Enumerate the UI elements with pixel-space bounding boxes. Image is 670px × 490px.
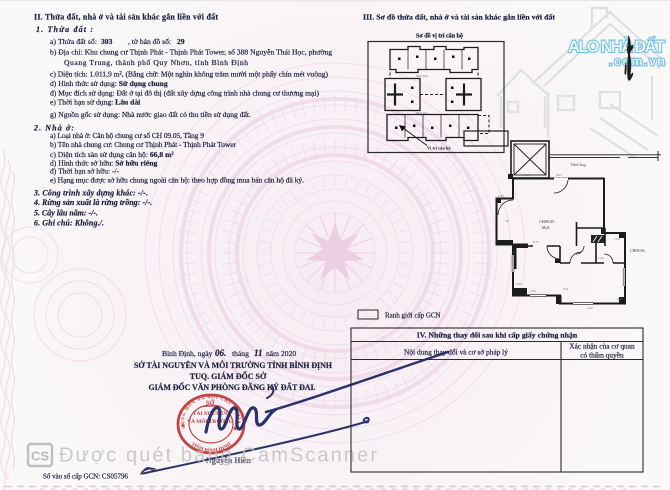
svg-text:III. Sơ đồ thửa đất, nhà ở và: III. Sơ đồ thửa đất, nhà ở và tài sản kh… <box>363 13 555 22</box>
svg-text:năm 2020: năm 2020 <box>266 349 296 358</box>
svg-text:1.45: 1.45 <box>498 194 504 198</box>
svg-text:Sơ đồ vị trí căn hộ: Sơ đồ vị trí căn hộ <box>416 33 463 40</box>
svg-text:0.08: 0.08 <box>617 297 623 301</box>
svg-text:Hành lang: Hành lang <box>416 75 428 78</box>
svg-text:Số vào sổ cấp GCN: CS05796: Số vào sổ cấp GCN: CS05796 <box>43 473 128 481</box>
svg-text:có thẩm quyền: có thẩm quyền <box>580 351 624 360</box>
svg-text:CS: CS <box>31 449 49 464</box>
svg-text:3.05: 3.05 <box>516 282 522 286</box>
svg-text:303: 303 <box>101 37 113 46</box>
svg-text:SỞ TÀI NGUYÊN VÀ MÔI TRƯỜNG TỈ: SỞ TÀI NGUYÊN VÀ MÔI TRƯỜNG TỈNH BÌNH ĐỊ… <box>134 360 333 370</box>
svg-text:TUQ. GIÁM ĐỐC SỞ: TUQ. GIÁM ĐỐC SỞ <box>190 371 267 381</box>
svg-text:29: 29 <box>177 37 185 46</box>
svg-text:GIÁM ĐỐC VĂN PHÒNG ĐĂNG KÝ ĐẤT: GIÁM ĐỐC VĂN PHÒNG ĐĂNG KÝ ĐẤT ĐAI. <box>149 382 316 392</box>
svg-text:đ) Mục đích sử dụng: Đất ở tại: đ) Mục đích sử dụng: Đất ở tại đô thị (đ… <box>50 89 319 98</box>
svg-text:3.6: 3.6 <box>505 219 509 223</box>
svg-text:1. Thửa đất :: 1. Thửa đất : <box>36 25 93 34</box>
svg-text:5. Cây lâu năm: -/-.: 5. Cây lâu năm: -/-. <box>34 209 98 218</box>
svg-text:b) Địa chỉ: Khu chung cư Thịnh: b) Địa chỉ: Khu chung cư Thịnh Phát - Th… <box>50 48 332 57</box>
svg-text:11: 11 <box>254 348 263 358</box>
svg-text:Nội dung thay đổi và cơ sở phá: Nội dung thay đổi và cơ sở pháp lý <box>404 348 508 357</box>
svg-text:IV. Những thay đổi sau khi cấp: IV. Những thay đổi sau khi cấp giấy chứn… <box>417 331 578 340</box>
svg-text:tháng: tháng <box>232 349 249 358</box>
svg-text:a) Thửa đất số:: a) Thửa đất số: <box>50 37 97 46</box>
svg-text:3. Công trình xây dựng khác: -: 3. Công trình xây dựng khác: -/-. <box>33 189 148 198</box>
svg-text:Bình Định, ngày: Bình Định, ngày <box>162 349 213 358</box>
svg-text:6. Ghi chú: Không./.: 6. Ghi chú: Không./. <box>34 219 104 228</box>
svg-text:Quang Trung, thành phố Quy Nhơ: Quang Trung, thành phố Quy Nhơn, tỉnh Bì… <box>64 58 248 67</box>
svg-text:CH09.05: CH09.05 <box>539 219 554 224</box>
svg-text:ALO NHÀ ĐẤT: ALO NHÀ ĐẤT <box>568 37 665 56</box>
svg-text:1.40: 1.40 <box>598 256 604 260</box>
svg-text:c) Diện tích: 1.011,9 m², (Bằn: c) Diện tích: 1.011,9 m², (Bằng chữ: Một… <box>50 70 328 79</box>
svg-text:2.70: 2.70 <box>530 289 536 293</box>
svg-text:SỞ: SỞ <box>206 399 216 407</box>
svg-text:g) Nguồn gốc sử dụng: Nhà nước: g) Nguồn gốc sử dụng: Nhà nước giao đất … <box>50 110 251 119</box>
svg-text:Ranh giới cấp GCN: Ranh giới cấp GCN <box>385 312 441 320</box>
svg-text:1.10: 1.10 <box>524 173 530 177</box>
svg-text:CH09.06: CH09.06 <box>630 248 645 253</box>
svg-text:d) Hình thức sử dụng: Sử dụng: d) Hình thức sử dụng: Sử dụng chung <box>50 79 168 88</box>
svg-text:06.: 06. <box>215 348 226 358</box>
svg-text:II. Thửa đất, nhà ở và tài sản: II. Thửa đất, nhà ở và tài sản khác gắn … <box>34 13 218 22</box>
svg-text:e) Thời hạn sử dụng: Lâu dài: e) Thời hạn sử dụng: Lâu dài <box>50 98 140 107</box>
svg-text:★: ★ <box>180 422 186 430</box>
svg-text:a) Loại nhà ở: Căn hộ chung cư: a) Loại nhà ở: Căn hộ chung cư số CH 09.… <box>50 131 204 140</box>
svg-text:b) Tên nhà chung cư: Chung cư: b) Tên nhà chung cư: Chung cư Thịnh Phát… <box>50 140 236 149</box>
svg-text:Vị trí căn hộ: Vị trí căn hộ <box>427 146 451 151</box>
svg-text:4.29: 4.29 <box>587 306 593 310</box>
svg-text:Xác nhận của cơ quan: Xác nhận của cơ quan <box>569 342 635 351</box>
svg-text:4. Rừng sản xuất là rừng trồng: 4. Rừng sản xuất là rừng trồng: -/-. <box>33 198 152 207</box>
svg-text:0.75: 0.75 <box>533 240 539 244</box>
svg-text:Hành lang: Hành lang <box>571 163 586 167</box>
svg-text:1.62: 1.62 <box>614 237 620 241</box>
svg-text:4.05: 4.05 <box>556 173 562 177</box>
svg-text:3.21: 3.21 <box>563 287 569 291</box>
svg-text:đ) Thời hạn sở hữu: -/-: đ) Thời hạn sở hữu: -/- <box>50 167 120 176</box>
svg-text:e) Hạng mục được sở hữu chung: e) Hạng mục được sở hữu chung ngoài căn … <box>50 176 304 185</box>
svg-text:.com.vn: .com.vn <box>609 55 665 69</box>
svg-text:, tờ bản đồ số:: , tờ bản đồ số: <box>128 37 171 46</box>
